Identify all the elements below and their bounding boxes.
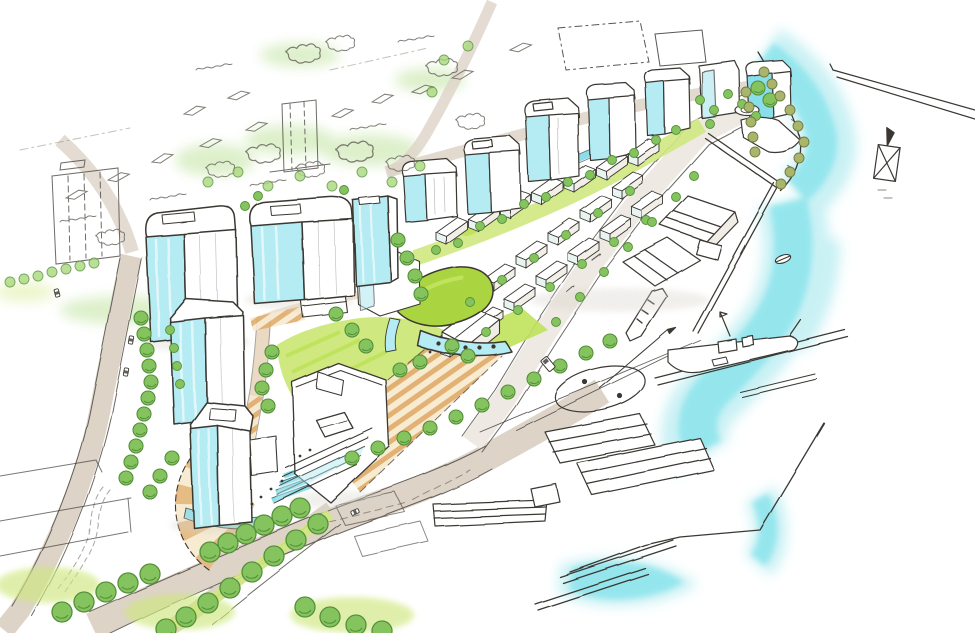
future-building-dashed-outline (558, 21, 706, 70)
tower-wing (250, 436, 278, 476)
sailing-boat (874, 127, 903, 198)
mid-rise-tower (645, 68, 690, 136)
street-car (54, 289, 60, 298)
waterfront-tower-5 (190, 402, 278, 528)
sketch-canvas (0, 0, 975, 633)
long-shed (433, 500, 547, 526)
street-car (128, 336, 134, 345)
roof-plant-box (270, 204, 301, 215)
roof-plant-box (359, 196, 380, 205)
mid-rise-tower (525, 98, 579, 182)
breakwater (830, 64, 975, 119)
residential-block (580, 195, 611, 222)
waterfront-tower-2 (250, 197, 354, 304)
dry-dock-shed (623, 238, 700, 286)
masterplan-sketch (0, 0, 975, 633)
mid-rise-tower (464, 136, 521, 214)
roof-terrace (209, 408, 236, 421)
street-car (123, 368, 129, 377)
mid-rise-tower (587, 83, 636, 160)
